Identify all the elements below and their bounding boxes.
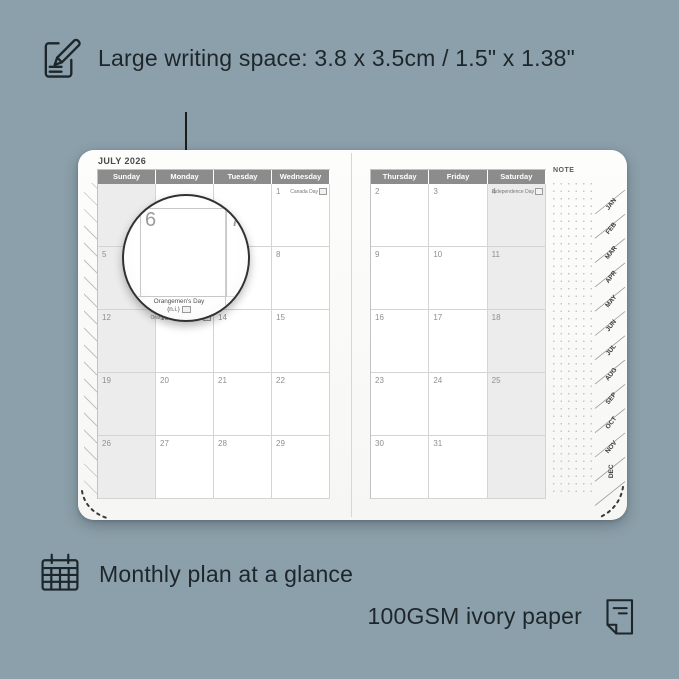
month-tab-label: OCT: [604, 415, 618, 430]
right-page-grid: ThursdayFridaySaturday234Independence Da…: [370, 169, 546, 499]
calendar-cell: 17: [429, 310, 487, 373]
month-tab-label: APR: [604, 269, 618, 284]
calendar-cell: 31: [429, 436, 487, 499]
calendar-cell: 22: [272, 373, 330, 436]
day-number: 15: [276, 313, 285, 322]
bottom-left-annotation: Monthly plan at a glance: [38, 551, 353, 597]
day-number: 9: [375, 250, 379, 259]
stitch-decoration: [595, 486, 625, 520]
day-number: 8: [276, 250, 280, 259]
magnified-partial-day: 13: [126, 296, 140, 311]
day-number: 18: [492, 313, 501, 322]
day-number: 20: [160, 376, 169, 385]
month-tab-label: SEP: [605, 391, 619, 406]
month-tab-label: JAN: [605, 197, 619, 212]
product-image: Large writing space: 3.8 x 3.5cm / 1.5" …: [0, 0, 679, 679]
weekday-header: Thursday: [371, 170, 429, 184]
calendar-cell: 4Independence Day: [488, 184, 546, 247]
month-tab-strip: JANFEBMARAPRMAYJUNJULAUGSEPOCTNOVDEC: [594, 162, 627, 514]
month-tab-label: FEB: [605, 221, 619, 236]
weekday-header: Monday: [156, 170, 214, 184]
day-number: 3: [433, 187, 437, 196]
calendar-cell: 18: [488, 310, 546, 373]
holiday-label: Independence Day: [492, 188, 543, 195]
weekday-header: Sunday: [98, 170, 156, 184]
calendar-cell: 21: [214, 373, 272, 436]
weekday-header: Wednesday: [272, 170, 330, 184]
top-annotation: Large writing space: 3.8 x 3.5cm / 1.5" …: [38, 34, 575, 82]
weekday-header: Friday: [429, 170, 487, 184]
bottom-right-annotation: 100GSM ivory paper: [367, 592, 639, 640]
calendar-cell: 27: [156, 436, 214, 499]
day-number: 11: [492, 250, 500, 259]
day-number: 22: [276, 376, 285, 385]
magnified-holiday-label: Orangemen's Day (n.i.): [146, 298, 212, 313]
month-tab-label: NOV: [604, 439, 619, 455]
day-number: 5: [102, 250, 106, 259]
day-number: 29: [276, 439, 285, 448]
calendar-cell: 30: [371, 436, 429, 499]
calendar-cell: 28: [214, 436, 272, 499]
calendar-cell: 1Canada Day: [272, 184, 330, 247]
day-number: 24: [433, 376, 442, 385]
day-number: 26: [102, 439, 111, 448]
stitch-decoration: [80, 490, 110, 520]
magnified-day-number: 6: [145, 209, 156, 232]
calendar-cell: 9: [371, 247, 429, 310]
weekday-header: Tuesday: [214, 170, 272, 184]
calendar-cell: 3: [429, 184, 487, 247]
note-label: NOTE: [553, 167, 574, 174]
calendar-cell: 14: [214, 310, 272, 373]
calendar-cell: 12: [98, 310, 156, 373]
day-number: 12: [102, 313, 111, 322]
magnified-adjacent-day: 7: [230, 209, 241, 232]
center-fold: [351, 153, 352, 517]
month-tab-label: JUL: [605, 343, 618, 357]
calendar-cell: 20: [156, 373, 214, 436]
day-number: 30: [375, 439, 384, 448]
magnifier-circle: 6 7 13 Orangemen's Day (n.i.): [122, 194, 250, 322]
day-number: 31: [433, 439, 442, 448]
paper-icon: [597, 592, 639, 640]
calendar-cell: 23: [371, 373, 429, 436]
month-tab-label: AUG: [604, 367, 618, 383]
flag-icon: [319, 188, 327, 195]
calendar-cell: 16: [371, 310, 429, 373]
day-number: 16: [375, 313, 384, 322]
day-number: 28: [218, 439, 227, 448]
day-number: 27: [160, 439, 169, 448]
flag-icon: [182, 306, 191, 313]
bottom-left-annotation-text: Monthly plan at a glance: [99, 561, 353, 588]
holiday-label: Canada Day: [290, 188, 327, 195]
day-number: 10: [433, 250, 442, 259]
day-number: 1: [276, 187, 280, 196]
calendar-cell: 2: [371, 184, 429, 247]
calendar-cell: 19: [98, 373, 156, 436]
day-number: 2: [375, 187, 379, 196]
day-number: 23: [375, 376, 384, 385]
month-title: JULY 2026: [98, 156, 146, 166]
calendar-cell: 8: [272, 247, 330, 310]
calendar-cell: 11: [488, 247, 546, 310]
day-number: 21: [218, 376, 227, 385]
weekday-header: Saturday: [488, 170, 546, 184]
calendar-cell: 15: [272, 310, 330, 373]
bottom-right-annotation-text: 100GSM ivory paper: [367, 603, 582, 630]
calendar-cell: 10: [429, 247, 487, 310]
day-number: 17: [433, 313, 442, 322]
day-number: 19: [102, 376, 111, 385]
note-dot-grid: [550, 180, 596, 498]
calendar-cell: 24: [429, 373, 487, 436]
calendar-cell: 29: [272, 436, 330, 499]
calendar-cell: 25: [488, 373, 546, 436]
month-tab-label: MAY: [604, 293, 618, 309]
month-tab-label: JUN: [605, 318, 619, 333]
day-number: 25: [492, 376, 501, 385]
flag-icon: [535, 188, 543, 195]
pencil-note-icon: [38, 34, 85, 82]
calendar-cell: [488, 436, 546, 499]
top-annotation-text: Large writing space: 3.8 x 3.5cm / 1.5" …: [98, 45, 575, 72]
calendar-icon: [38, 551, 82, 597]
month-tab-label: DEC: [608, 464, 615, 478]
month-tab-label: MAR: [604, 245, 619, 261]
